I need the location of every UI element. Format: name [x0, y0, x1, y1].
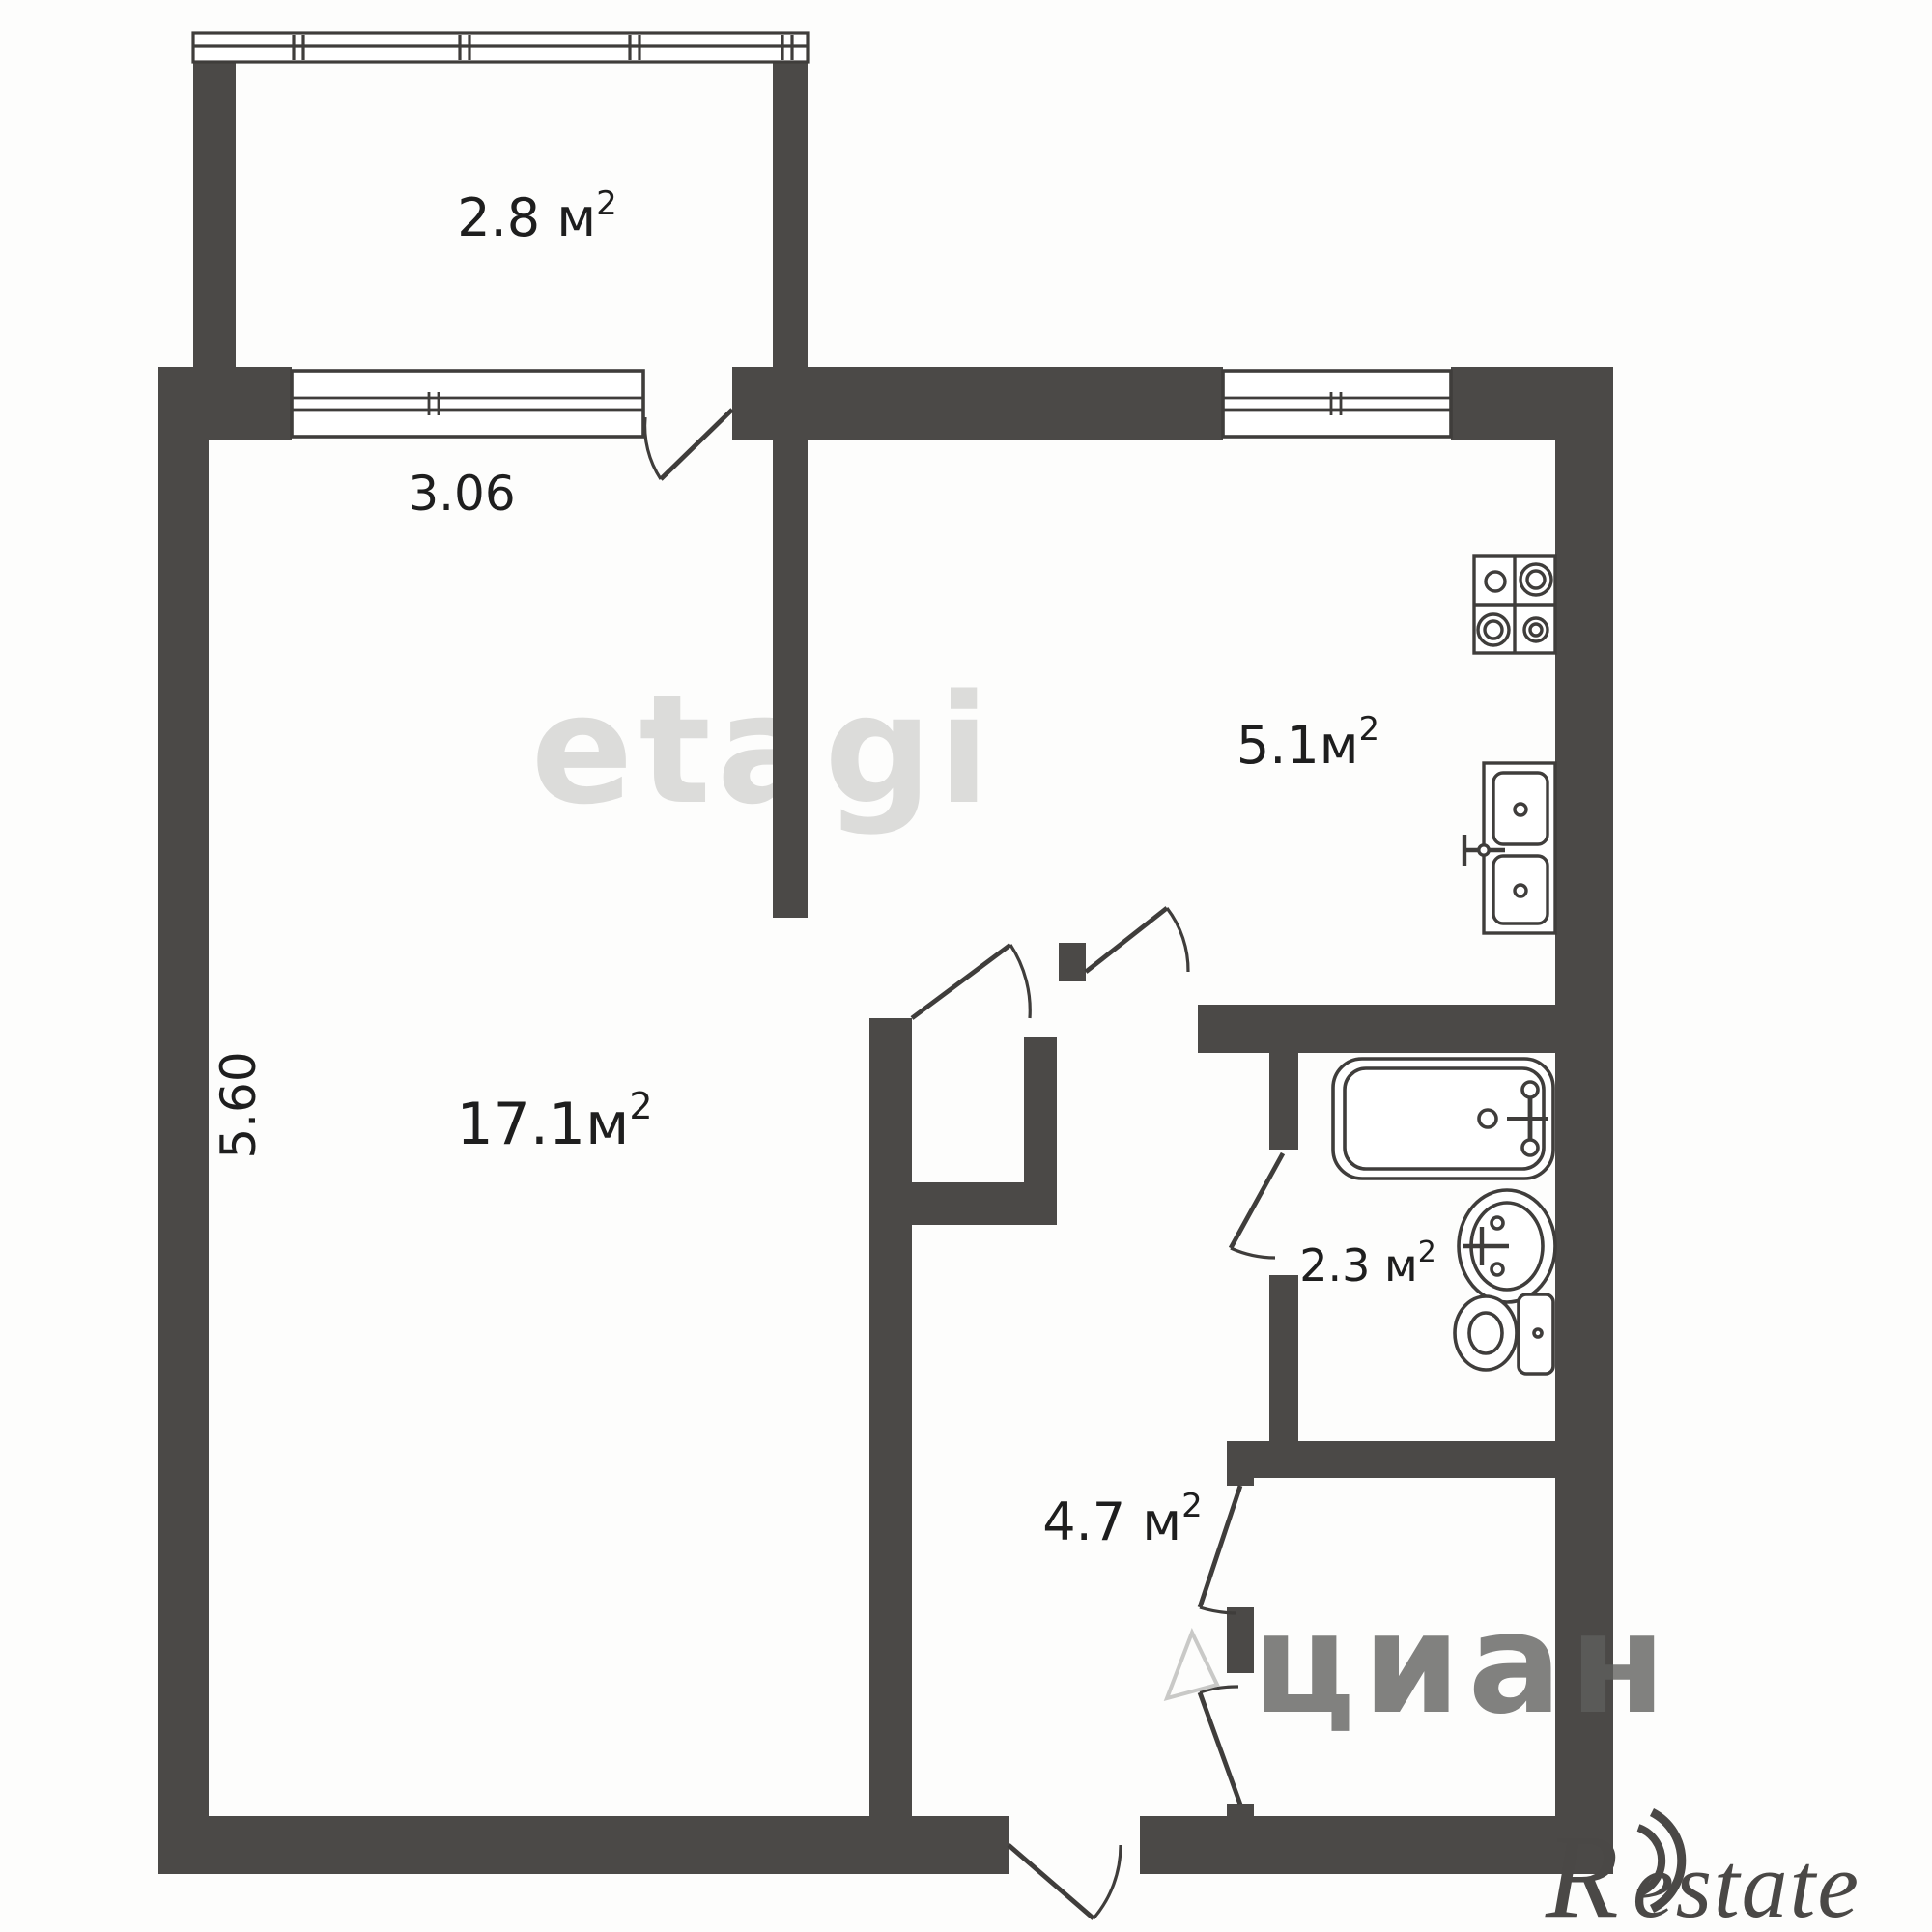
- wall-bathroom-left-bottom: [1269, 1275, 1298, 1441]
- wall-balcony-right: [773, 33, 808, 367]
- wall-top-a: [158, 367, 292, 440]
- wall-bathroom-bottom: [1254, 1441, 1613, 1478]
- wall-bathroom-left-top: [1269, 1053, 1298, 1150]
- wall-kitchen-bathroom: [1198, 1005, 1613, 1053]
- balcony-railing: [193, 33, 808, 62]
- watermark-restate: R estate: [1545, 1810, 1861, 1932]
- wall-closet-b: [1227, 1607, 1254, 1673]
- kitchen-window: [1223, 371, 1451, 437]
- wall-bottom-a: [158, 1816, 1009, 1874]
- label-hallway-area: 4.7 м2: [1042, 1487, 1202, 1552]
- watermark-cian: циан: [1252, 1582, 1673, 1745]
- label-living-area: 17.1м2: [456, 1085, 652, 1158]
- wall-room-hallway: [869, 1018, 912, 1816]
- room-door: [912, 945, 1030, 1018]
- wall-top-c: [1451, 367, 1613, 440]
- label-bathroom-area: 2.3 м2: [1299, 1236, 1436, 1292]
- cian-pin-icon: [1167, 1633, 1217, 1698]
- closet-door-bottom: [1200, 1687, 1240, 1804]
- wall-top-b: [732, 367, 1223, 440]
- label-balcony-area: 2.8 м2: [457, 185, 616, 248]
- label-dim-height: 5.60: [211, 1051, 267, 1158]
- wall-left: [158, 367, 209, 1874]
- floor-plan-page: etagi: [0, 0, 1932, 1932]
- wall-niche-bottom: [904, 1182, 1057, 1225]
- room-window: [292, 371, 643, 437]
- watermark-etagi: etagi: [531, 662, 996, 838]
- washbasin-icon: [1459, 1190, 1555, 1302]
- closet-door-top: [1200, 1486, 1240, 1613]
- bathtub-icon: [1333, 1059, 1553, 1179]
- brand-r: R: [1545, 1810, 1619, 1932]
- stove-icon: [1474, 556, 1555, 653]
- entry-door: [1009, 1845, 1121, 1918]
- label-kitchen-area: 5.1м2: [1236, 710, 1379, 776]
- label-dim-width: 3.06: [408, 466, 515, 522]
- bathroom-door: [1231, 1153, 1283, 1258]
- wall-kitchen-door-stub: [1059, 943, 1086, 981]
- kitchen-sink-icon: [1464, 763, 1555, 933]
- balcony-door: [645, 410, 732, 479]
- wall-balcony-left: [193, 33, 236, 367]
- kitchen-door: [1086, 908, 1188, 972]
- brand-estate: estate: [1633, 1833, 1861, 1932]
- wall-niche-right: [1024, 1037, 1057, 1182]
- toilet-icon: [1455, 1294, 1553, 1374]
- wall-closet-a: [1227, 1441, 1254, 1486]
- floor-plan: etagi: [0, 0, 1932, 1932]
- wall-closet-c: [1227, 1804, 1254, 1855]
- wall-room-kitchen: [773, 440, 808, 918]
- wall-bottom-b: [1140, 1816, 1613, 1874]
